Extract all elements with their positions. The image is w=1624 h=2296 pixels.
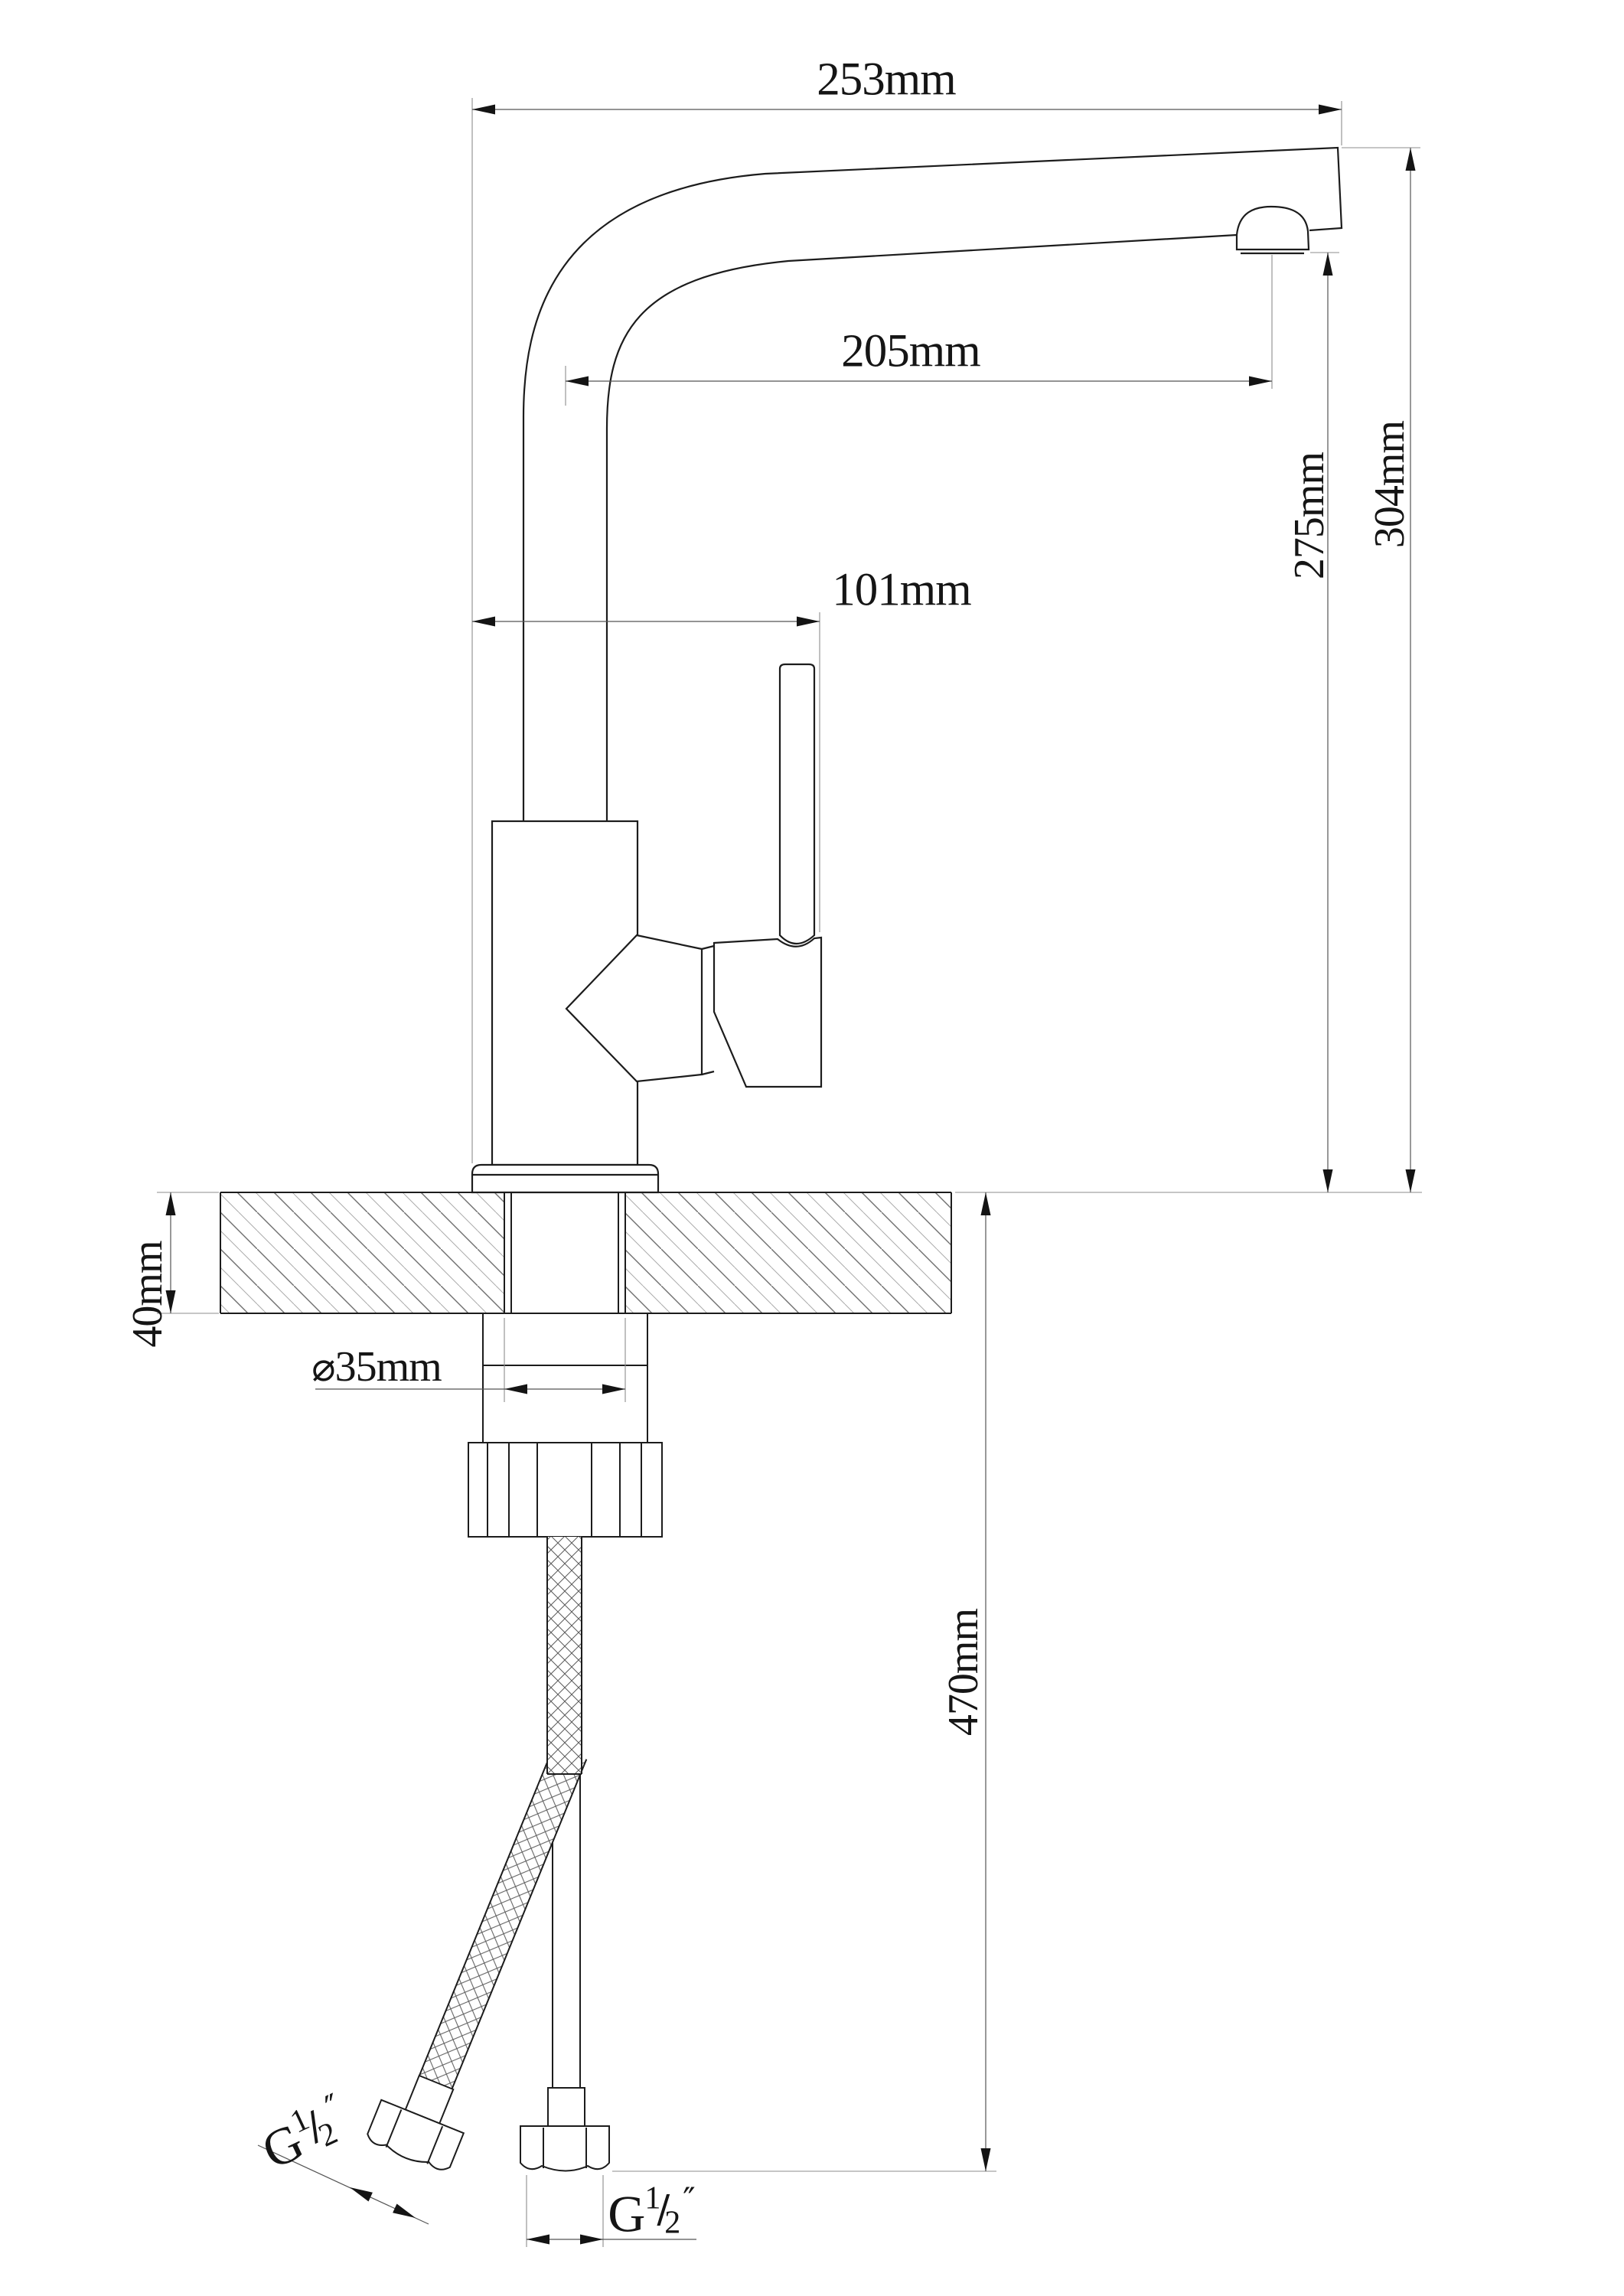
counter-hatch-left (220, 1192, 504, 1313)
castellation-tab-2 (509, 1443, 537, 1537)
extension-lines (157, 98, 1422, 2247)
mounting-collar (483, 1313, 647, 1443)
hose-fitting-left (364, 2066, 477, 2174)
dim-label-deck-thickness: 40mm (126, 1241, 169, 1347)
castellation-tab-3 (592, 1443, 620, 1537)
mounting-hardware (468, 1313, 662, 1537)
hex-nut (520, 2126, 609, 2171)
dim-label-spout-reach: 253mm (817, 57, 955, 103)
dim-label-handle-span: 101mm (832, 567, 970, 614)
dim-label-outlet-height: 275mm (1288, 452, 1331, 579)
joint-seam (702, 946, 714, 1075)
dim-label-outlet-reach: 205mm (841, 328, 980, 375)
spout-inner-edge (607, 235, 1237, 821)
vertical-hose-braided (547, 1537, 582, 1774)
crimp-collar (548, 2088, 585, 2126)
dimension-lines (171, 109, 1410, 2239)
counter-hatch-right (625, 1192, 951, 1313)
faucet-outline (472, 148, 1342, 1192)
counter-hole-walls (504, 1192, 625, 1313)
hose-fitting-center (520, 2088, 609, 2171)
dim-label-thread-bottom: G1∕2″ (608, 2183, 694, 2240)
faucet-dimension-drawing: 253mm 205mm 101mm 275mm 304mm 40mm ⌀35mm… (0, 0, 1624, 2296)
dim-label-hole-diameter: ⌀35mm (311, 1345, 441, 1388)
dimension-arrows (166, 105, 1416, 2245)
drawing-canvas (0, 0, 1624, 2296)
handle-lever (780, 664, 814, 944)
dim-label-total-height: 304mm (1368, 421, 1411, 548)
castellation-tab-4 (641, 1443, 662, 1537)
aerator (1237, 207, 1309, 249)
shank-tube (511, 1192, 618, 1315)
countertop-section (220, 1192, 951, 1315)
diameter-symbol: ⌀ (311, 1345, 334, 1391)
cartridge-housing (714, 938, 821, 1087)
castellation-tab-1 (468, 1443, 488, 1537)
spout-outer-edge (523, 148, 1342, 821)
dim-label-hose-length: 470mm (942, 1609, 985, 1736)
base-ring (472, 1165, 658, 1192)
